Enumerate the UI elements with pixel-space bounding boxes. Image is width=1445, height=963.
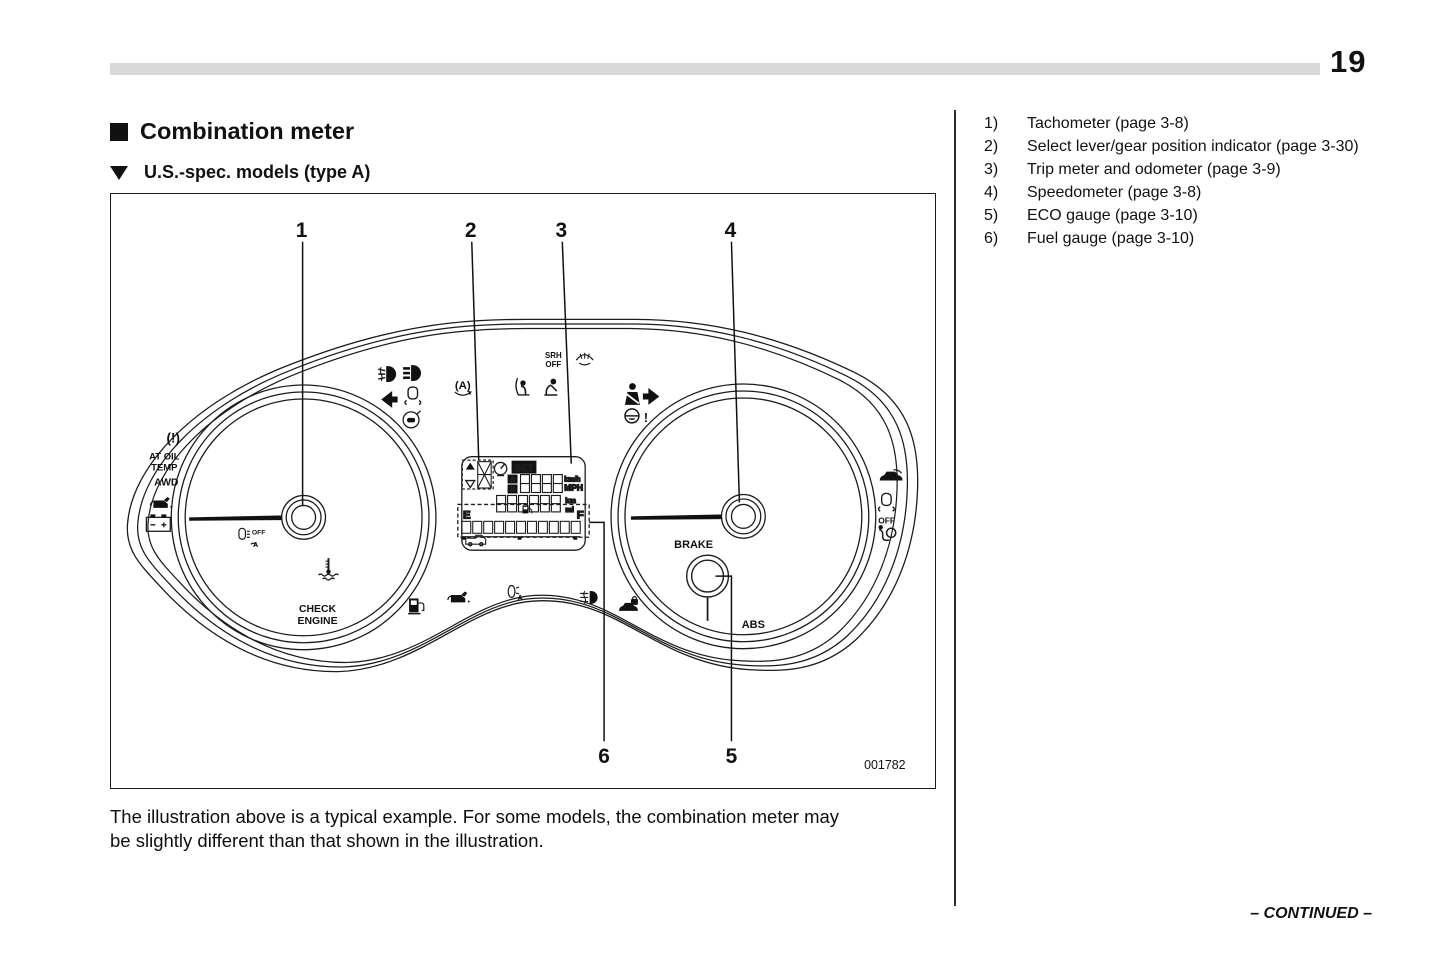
subsection-title: U.S.-spec. models (type A)	[144, 162, 370, 183]
vdc-off-icon	[879, 493, 895, 511]
auto-stop-start-icon: (A)	[455, 380, 471, 395]
legend-item-label: Tachometer (page 3-8)	[1027, 112, 1379, 135]
awd-label: AWD	[154, 478, 179, 489]
legend-item-number: 3)	[984, 158, 1027, 181]
legend-item-label: Fuel gauge (page 3-10)	[1027, 227, 1379, 250]
seatbelt-warning-icon	[625, 383, 640, 405]
callout-5: 5	[726, 745, 738, 768]
gear-position-indicator	[462, 460, 493, 489]
legend-item-3: 3) Trip meter and odometer (page 3-9)	[984, 158, 1404, 181]
rear-hatch-icon	[880, 470, 903, 481]
tpms-warning-icon: (!)	[167, 431, 180, 446]
eco-gauge	[687, 555, 729, 621]
callout-3: 3	[555, 219, 567, 242]
callout-line-3	[562, 242, 571, 464]
check-engine-label-line2: ENGINE	[298, 616, 338, 627]
oil-pressure-icon	[150, 497, 172, 508]
legend-list: 1) Tachometer (page 3-8) 2) Select lever…	[984, 112, 1404, 250]
callout-2: 2	[465, 219, 477, 242]
mi-label: mi	[565, 505, 574, 514]
check-engine-label-line1: CHECK	[299, 604, 337, 615]
hill-start-assist-icon	[403, 411, 420, 428]
abs-label: ABS	[742, 619, 765, 631]
legend-item-5: 5) ECO gauge (page 3-10)	[984, 204, 1404, 227]
legend-item-number: 1)	[984, 112, 1027, 135]
srs-warning-icon	[544, 379, 557, 395]
legend-item-number: 6)	[984, 227, 1027, 250]
section-heading: Combination meter	[110, 118, 354, 145]
charge-battery-icon	[146, 514, 170, 531]
legend-item-6: 6) Fuel gauge (page 3-10)	[984, 227, 1404, 250]
headlight-leveling-a-label: A	[518, 593, 524, 602]
column-divider	[954, 110, 956, 906]
figure-number: 001782	[864, 758, 906, 772]
manual-page: 19 Combination meter U.S.-spec. models (…	[0, 0, 1445, 963]
page-number: 19	[1330, 44, 1366, 80]
passenger-airbag-icon	[516, 378, 529, 395]
callout-line-6	[589, 522, 604, 741]
continued-marker: – CONTINUED –	[1250, 905, 1372, 923]
headlight-off-a-label: A	[253, 540, 259, 549]
center-display: SET A B km/h MPH	[458, 457, 589, 551]
headlight-off-label: OFF	[252, 529, 265, 536]
legend-item-number: 5)	[984, 204, 1027, 227]
header-rule-bar	[110, 63, 1320, 75]
mph-label: MPH	[564, 483, 583, 493]
fuel-f-label: F	[577, 509, 584, 521]
callout-4: 4	[725, 219, 737, 242]
legend-item-2: 2) Select lever/gear position indicator …	[984, 135, 1404, 158]
triangle-bullet-icon	[110, 166, 128, 180]
fuel-e-label: E	[463, 509, 471, 521]
figure-frame: SET A B km/h MPH	[110, 193, 936, 789]
trip-b-label: B	[510, 485, 516, 494]
fuel-low-icon	[408, 598, 424, 613]
front-fog-icon	[378, 366, 396, 382]
square-bullet-icon	[110, 123, 128, 141]
subsection-heading: U.S.-spec. models (type A)	[110, 162, 370, 183]
callout-6: 6	[598, 745, 610, 768]
turn-right-icon	[643, 388, 659, 405]
legend-item-label: ECO gauge (page 3-10)	[1027, 204, 1379, 227]
trip-a-label: A	[510, 475, 516, 484]
svg-text:(A): (A)	[455, 380, 471, 392]
legend-item-4: 4) Speedometer (page 3-8)	[984, 181, 1404, 204]
cruise-set-icon	[494, 462, 506, 475]
rear-fog-icon	[580, 591, 597, 604]
callout-line-2	[472, 242, 479, 460]
legend-item-1: 1) Tachometer (page 3-8)	[984, 112, 1404, 135]
steering-warning-excl: !	[644, 411, 648, 425]
vdc-off-label: OFF	[878, 515, 895, 525]
caption-line-1: The illustration above is a typical exam…	[110, 805, 955, 829]
steering-warning-icon	[625, 409, 639, 423]
legend-item-label: Trip meter and odometer (page 3-9)	[1027, 158, 1379, 181]
km-label: km	[565, 496, 576, 505]
high-beam-icon	[403, 365, 421, 381]
vdc-warning-icon	[405, 387, 421, 405]
trip-meter-display: A B km/h MPH	[497, 475, 583, 514]
figure-caption: The illustration above is a typical exam…	[110, 805, 955, 853]
set-label: SET	[515, 463, 534, 474]
legend-item-label: Select lever/gear position indicator (pa…	[1027, 135, 1379, 158]
srh-off-label-line2: OFF	[545, 360, 561, 369]
at-oil-temp-label-line1: AT OIL	[149, 452, 179, 463]
washer-fluid-icon	[576, 353, 593, 365]
security-icon	[619, 597, 638, 611]
legend-item-number: 4)	[984, 181, 1027, 204]
legend-item-label: Speedometer (page 3-8)	[1027, 181, 1379, 204]
combination-meter-illustration: SET A B km/h MPH	[111, 194, 935, 788]
speedometer-gauge	[611, 384, 876, 649]
callout-1: 1	[296, 219, 308, 242]
at-oil-temp-label-line2: TEMP	[151, 463, 177, 474]
coolant-temp-icon	[319, 558, 339, 580]
section-title: Combination meter	[140, 118, 354, 145]
srh-off-label-line1: SRH	[545, 351, 562, 360]
legend-item-number: 2)	[984, 135, 1027, 158]
brake-label: BRAKE	[674, 539, 713, 551]
caption-line-2: be slightly different than that shown in…	[110, 829, 955, 853]
callout-line-4	[731, 242, 739, 503]
turn-left-icon	[381, 391, 397, 408]
oil-level-icon	[448, 591, 470, 602]
